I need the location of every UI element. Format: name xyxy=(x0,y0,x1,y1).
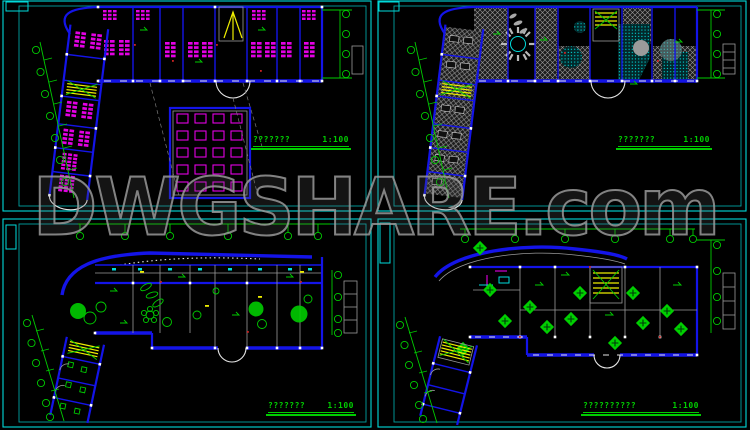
stair-icon xyxy=(593,9,619,41)
plan-title-text: ??????? xyxy=(268,401,305,410)
stair-icon xyxy=(219,7,243,41)
building-detached-room xyxy=(170,108,250,198)
floor-plan-finishes xyxy=(375,0,750,215)
markers xyxy=(134,27,265,72)
building-diagonal-wing xyxy=(422,24,485,212)
grid-dimension-right xyxy=(697,10,735,78)
sheet-top-right: ??????? 1:100 xyxy=(375,0,750,215)
grid-dimension-left xyxy=(32,42,77,198)
grid-dimension-left xyxy=(23,315,64,421)
planting-and-tables xyxy=(70,271,312,329)
stair-icon xyxy=(67,340,99,360)
plan-title: ?????????? 1:100 xyxy=(583,401,699,413)
floor-plan-layout xyxy=(0,215,375,430)
plan-title-text: ??????? xyxy=(253,135,290,144)
plan-scale: 1:100 xyxy=(683,135,710,144)
plan-title-text: ??????? xyxy=(618,135,655,144)
round-platform xyxy=(633,40,649,56)
grid-dimension-top xyxy=(76,224,330,240)
sheet-frame xyxy=(378,219,746,427)
plan-scale: 1:100 xyxy=(327,401,354,410)
grid-dimension-right xyxy=(332,270,357,337)
markers xyxy=(160,281,302,333)
grid-dimension-right xyxy=(322,10,363,78)
plan-title: ??????? 1:100 xyxy=(618,135,710,147)
building-top-wing xyxy=(98,7,322,98)
plan-title: ??????? 1:100 xyxy=(253,135,349,147)
plan-scale: 1:100 xyxy=(672,401,699,410)
sheet-bottom-right: ?????????? 1:100 xyxy=(375,215,750,430)
grid-dimension-right xyxy=(697,240,735,333)
sheet-frame xyxy=(3,1,371,211)
plan-scale: 1:100 xyxy=(322,135,349,144)
flower-table xyxy=(141,306,158,322)
bay-arc xyxy=(594,355,620,368)
sheet-top-left: ??????? 1:100 xyxy=(0,0,375,215)
sheet-bottom-left: ??????? 1:100 xyxy=(0,215,375,430)
building-band xyxy=(94,257,324,362)
floor-plan-ceiling xyxy=(375,215,750,430)
floor-plan-furniture xyxy=(0,0,375,215)
bay-arc xyxy=(216,81,250,98)
grid-dimension-top xyxy=(460,229,697,243)
plan-title: ??????? 1:100 xyxy=(268,401,354,413)
building-diagonal-wing xyxy=(49,337,105,424)
window-marks xyxy=(112,268,312,271)
ceiling-light-icons xyxy=(456,241,688,356)
sun-center xyxy=(511,37,526,52)
stair-icon xyxy=(438,339,474,365)
cad-drawing-preview: ??????? 1:100 xyxy=(0,0,750,430)
canopy-curve xyxy=(62,253,312,295)
stair-icon xyxy=(590,267,622,303)
sheet-frame xyxy=(3,219,371,427)
plan-title-text: ?????????? xyxy=(583,401,636,410)
bay-arc xyxy=(218,348,246,362)
sun-mosaic-icon xyxy=(501,27,535,61)
building-diagonal-wing xyxy=(47,24,110,212)
